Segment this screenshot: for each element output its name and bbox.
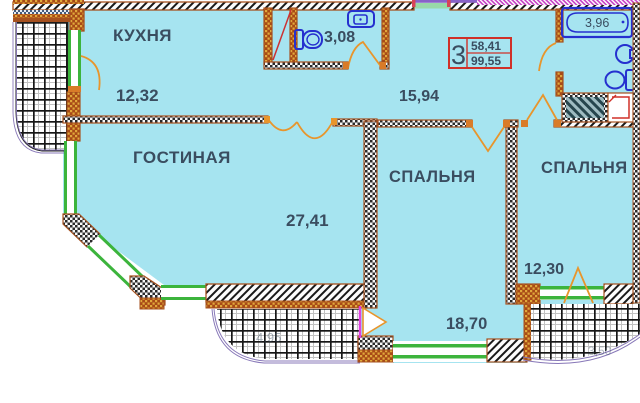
svg-text:СПАЛЬНЯ: СПАЛЬНЯ (389, 168, 476, 186)
svg-text:27,41: 27,41 (286, 211, 329, 230)
svg-text:3,96: 3,96 (585, 16, 609, 30)
svg-text:ГОСТИНАЯ: ГОСТИНАЯ (133, 148, 231, 167)
svg-text:КУХНЯ: КУХНЯ (113, 26, 172, 45)
svg-text:3: 3 (451, 40, 466, 70)
svg-text:15,94: 15,94 (399, 88, 439, 105)
svg-text:4,95: 4,95 (256, 330, 281, 345)
svg-text:12,30: 12,30 (524, 261, 564, 278)
svg-text:12,32: 12,32 (116, 86, 159, 105)
svg-text:3,50: 3,50 (588, 344, 612, 358)
svg-text:3,08: 3,08 (324, 29, 355, 46)
svg-text:СПАЛЬНЯ: СПАЛЬНЯ (541, 159, 628, 177)
svg-text:58,41: 58,41 (471, 39, 501, 53)
svg-text:99,55: 99,55 (471, 54, 501, 68)
svg-text:18,70: 18,70 (446, 315, 487, 333)
